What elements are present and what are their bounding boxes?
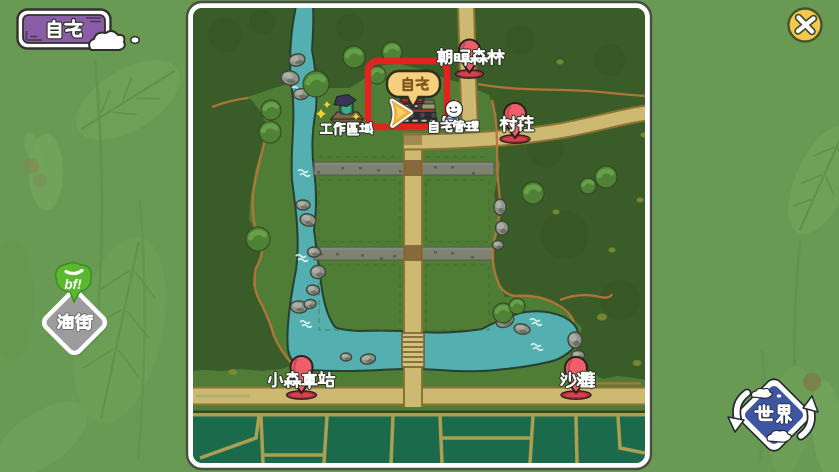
svg-text:bf!: bf!	[64, 277, 82, 292]
